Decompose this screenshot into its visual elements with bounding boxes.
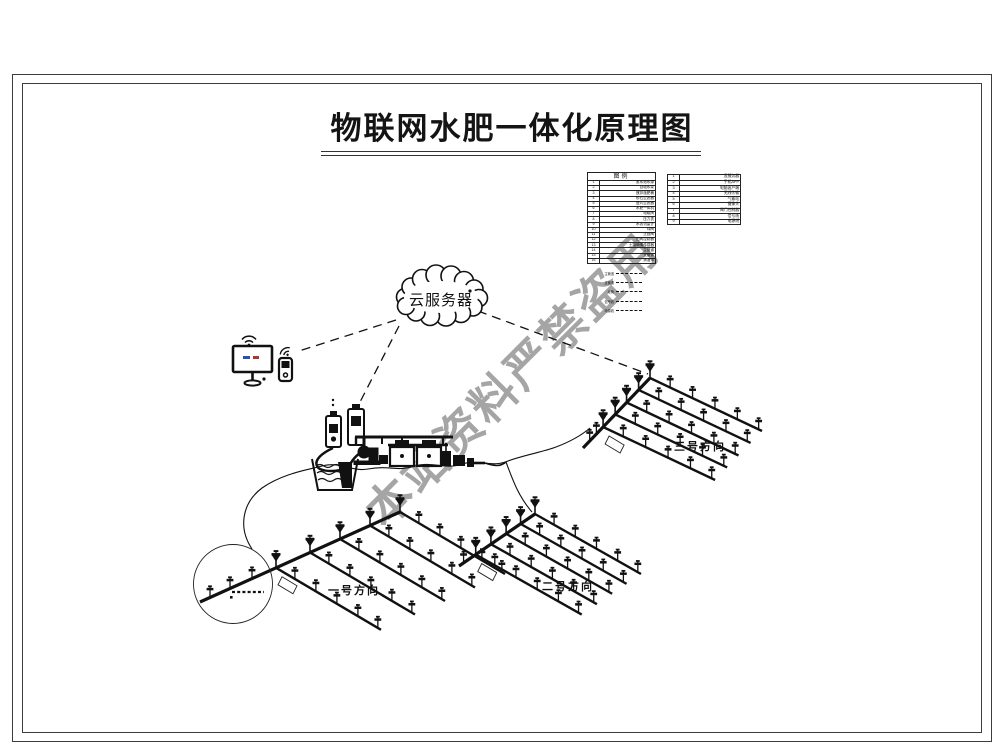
- screen-blue-mark: [243, 356, 250, 359]
- drawing-canvas: 本站资料严禁盗用: [0, 0, 1000, 750]
- legend-line-item: 毛管: [598, 287, 642, 296]
- legend-table-main: 图例1蓄水池水源2自吸水泵3搅拌施肥桶4砂石过滤器5叠片过滤器6水肥一体机7电磁…: [587, 172, 656, 264]
- field-label-2: 二号方向: [542, 578, 594, 594]
- field-label-1: 一号方向: [328, 582, 380, 598]
- smartphone-icon: [279, 346, 293, 381]
- screen-red-mark: [253, 356, 259, 359]
- page-title: 物联网水肥一体化原理图: [262, 103, 762, 148]
- irrigation-grid-3: [583, 361, 762, 480]
- cloud-server-label: 云服务器: [402, 289, 480, 310]
- legend-line-item: 电源线: [598, 306, 642, 315]
- field-label-3: 三号方向: [674, 438, 726, 454]
- legend-line-item: 支管道: [598, 278, 642, 287]
- legend-line-item: 信号线: [598, 297, 642, 306]
- legend-row: 16滴灌带: [588, 258, 656, 263]
- legend-line-styles: 主管道支管道毛管信号线电源线: [598, 269, 642, 315]
- legend-line-item: 主管道: [598, 269, 642, 278]
- irrigation-grid-2: [459, 497, 641, 614]
- irrigation-grid-1: [200, 495, 505, 630]
- title-underline: [321, 151, 701, 156]
- legend-row: 9电源线: [668, 219, 741, 225]
- monitor-icon: [233, 336, 272, 385]
- legend-table-side: 1云服务器2手机APP3电脑客户端4无线传输5气象站6摄像头7阀门控制器8信号线…: [667, 174, 741, 225]
- detail-circle: [194, 545, 273, 624]
- irrigation-grids: [200, 361, 762, 630]
- dashed-link-cloud-devices: [299, 311, 648, 404]
